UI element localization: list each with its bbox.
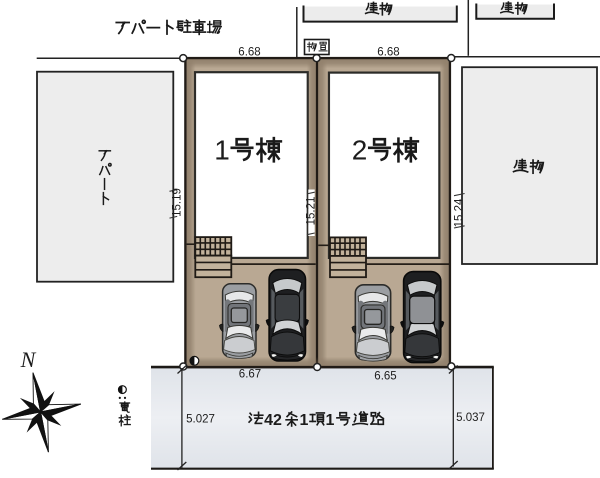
svg-text:1: 1 bbox=[300, 412, 309, 429]
svg-text:15.21: 15.21 bbox=[306, 197, 318, 226]
svg-text:6.67: 6.67 bbox=[239, 369, 261, 381]
svg-text:N: N bbox=[20, 347, 37, 372]
svg-text:5.027: 5.027 bbox=[186, 414, 215, 426]
svg-text:5.037: 5.037 bbox=[456, 412, 485, 424]
svg-text:1: 1 bbox=[326, 412, 335, 429]
svg-text:15.24: 15.24 bbox=[454, 198, 466, 227]
svg-text:2: 2 bbox=[352, 135, 368, 166]
svg-text:42: 42 bbox=[264, 412, 282, 429]
svg-text:1: 1 bbox=[214, 135, 230, 166]
svg-text:6.68: 6.68 bbox=[377, 47, 399, 59]
svg-text:15.19: 15.19 bbox=[172, 188, 184, 217]
svg-text:6.65: 6.65 bbox=[374, 371, 396, 383]
svg-text:6.68: 6.68 bbox=[238, 47, 260, 59]
